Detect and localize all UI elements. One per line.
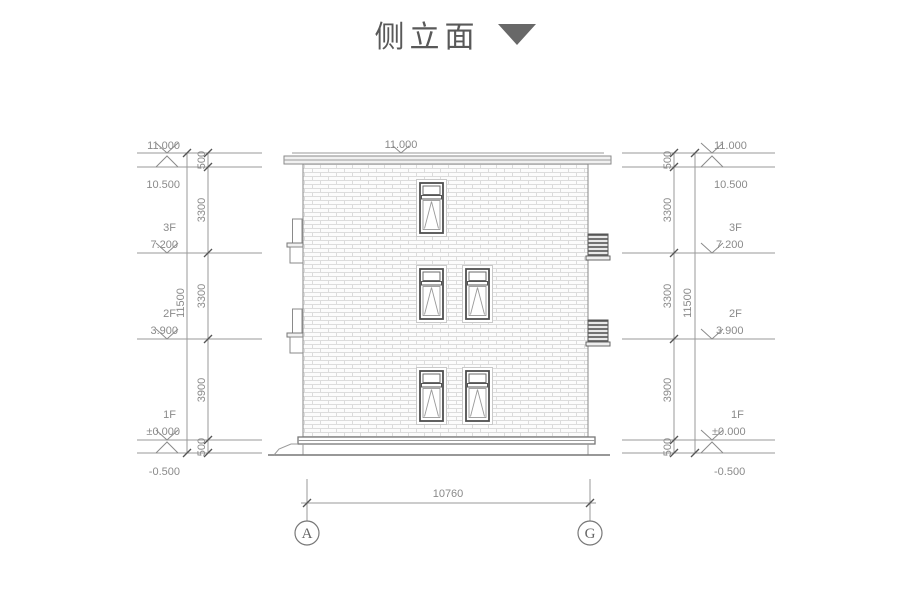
segment-dim: 500 bbox=[196, 151, 208, 169]
window-2f-right bbox=[463, 266, 493, 323]
right-dimension-system: 11.000 10.500 3F 7.200 2F 3.900 1F ±0.00… bbox=[622, 140, 775, 478]
left-dimension-system: 11.000 10.500 3F 7.200 2F 3.900 1F ±0.00… bbox=[137, 140, 262, 478]
level-value: ±0.000 bbox=[712, 426, 746, 438]
overall-dim: 11500 bbox=[175, 288, 187, 318]
level-marker-icon bbox=[156, 156, 178, 167]
width-dim: 10760 bbox=[433, 488, 464, 500]
segment-dim: 3900 bbox=[662, 378, 674, 402]
floor-label: 3F bbox=[729, 222, 742, 234]
level-value: 10.500 bbox=[146, 179, 180, 191]
window-2f-left bbox=[417, 266, 447, 323]
level-value: -0.500 bbox=[714, 466, 745, 478]
level-value: 10.500 bbox=[714, 179, 748, 191]
level-value: 3.900 bbox=[716, 325, 744, 337]
overall-dim: 11500 bbox=[682, 288, 694, 318]
floor-label: 1F bbox=[163, 409, 176, 421]
floor-label: 3F bbox=[163, 222, 176, 234]
segment-dim: 500 bbox=[662, 151, 674, 169]
building-elevation: 11.000 bbox=[268, 139, 611, 455]
floor-label: 1F bbox=[731, 409, 744, 421]
bottom-dimension-system: 10760 A G bbox=[295, 479, 602, 545]
louver-vent-2f bbox=[586, 320, 610, 346]
level-value: -0.500 bbox=[149, 466, 180, 478]
level-marker-icon bbox=[701, 442, 723, 453]
grid-axis-label-g: G bbox=[585, 526, 596, 542]
segment-dim: 3900 bbox=[196, 378, 208, 402]
level-marker-icon bbox=[701, 156, 723, 167]
level-value: 11.000 bbox=[147, 140, 180, 152]
segment-dim: 500 bbox=[662, 438, 674, 456]
elevation-drawing: 11.000 11.000 10.500 3F 7.200 2F 3.900 1… bbox=[0, 0, 910, 612]
segment-dim: 3300 bbox=[662, 284, 674, 308]
louver-vent-3f bbox=[586, 234, 610, 260]
floor-label: 2F bbox=[729, 308, 742, 320]
segment-dim: 500 bbox=[196, 438, 208, 456]
window-3f bbox=[417, 180, 447, 237]
segment-dim: 3300 bbox=[196, 284, 208, 308]
level-value: 7.200 bbox=[716, 239, 744, 251]
level-marker-icon bbox=[156, 442, 178, 453]
segment-dim: 3300 bbox=[662, 198, 674, 222]
grid-axis-label-a: A bbox=[302, 526, 313, 542]
segment-dim: 3300 bbox=[196, 198, 208, 222]
window-1f-left bbox=[417, 368, 447, 425]
window-1f-right bbox=[463, 368, 493, 425]
entry-ramp bbox=[274, 444, 298, 455]
level-value: 3.900 bbox=[150, 325, 178, 337]
roof-peak-elevation-value: 11.000 bbox=[385, 139, 418, 151]
side-bay-3f bbox=[287, 219, 303, 263]
level-value: ±0.000 bbox=[146, 426, 180, 438]
level-value: 11.000 bbox=[714, 140, 747, 152]
side-bay-2f bbox=[287, 309, 303, 353]
level-value: 7.200 bbox=[150, 239, 178, 251]
